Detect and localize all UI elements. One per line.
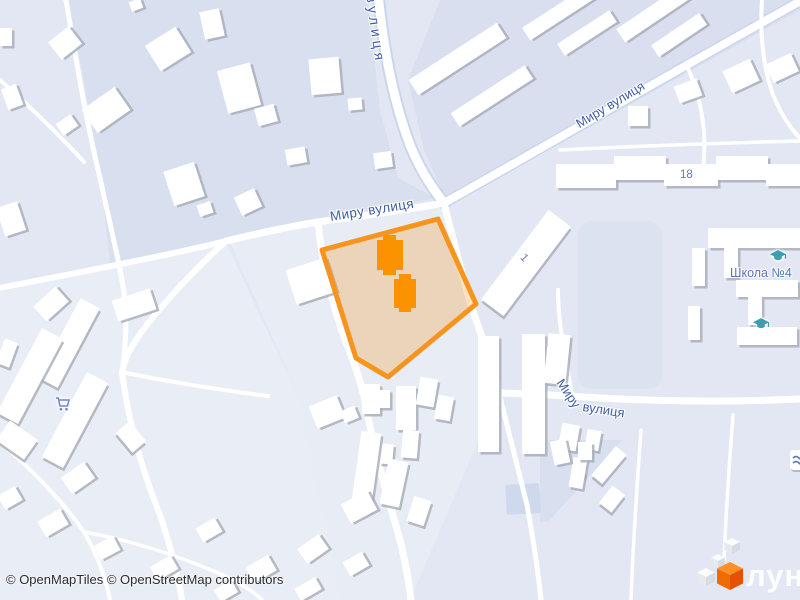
building [556,164,619,191]
graduation-cap-icon [769,249,787,268]
lun-logo[interactable]: лун [688,532,800,600]
lun-logo-wordmark: лун [746,560,800,591]
graduation-cap-icon [752,317,770,336]
building [522,334,548,457]
map-attribution[interactable]: © OpenMapTiles © OpenStreetMap contribut… [6,572,283,587]
building [285,146,310,168]
building [373,150,396,171]
building [688,306,703,343]
building [692,248,708,289]
building [308,57,344,98]
building [716,156,771,183]
building [568,469,588,492]
map-tiles [0,0,800,600]
selected-parcel-building [399,308,411,312]
selected-parcel-building [394,279,416,308]
building [578,442,595,463]
building [708,228,800,251]
house-number-18: 18 [680,169,693,181]
poi-icon-partial [790,450,800,470]
building [401,429,422,461]
building [396,386,419,433]
building [766,164,800,189]
building [478,336,502,455]
school-label: Школа №4 [730,266,792,280]
selected-parcel-building [383,270,396,275]
building [722,58,763,96]
building [614,156,669,183]
building [628,106,651,129]
building [597,485,627,516]
building [736,280,800,300]
building [1,83,27,112]
shopping-cart-icon [55,396,71,417]
map-canvas[interactable]: вулиця Миру вулиця Миру вулиця Миру вули… [0,0,800,600]
selected-parcel-building [377,240,403,270]
selected-parcel-building [383,235,396,240]
building [0,201,29,239]
building [378,390,393,411]
selected-parcel-building [399,274,411,279]
building [0,28,15,49]
